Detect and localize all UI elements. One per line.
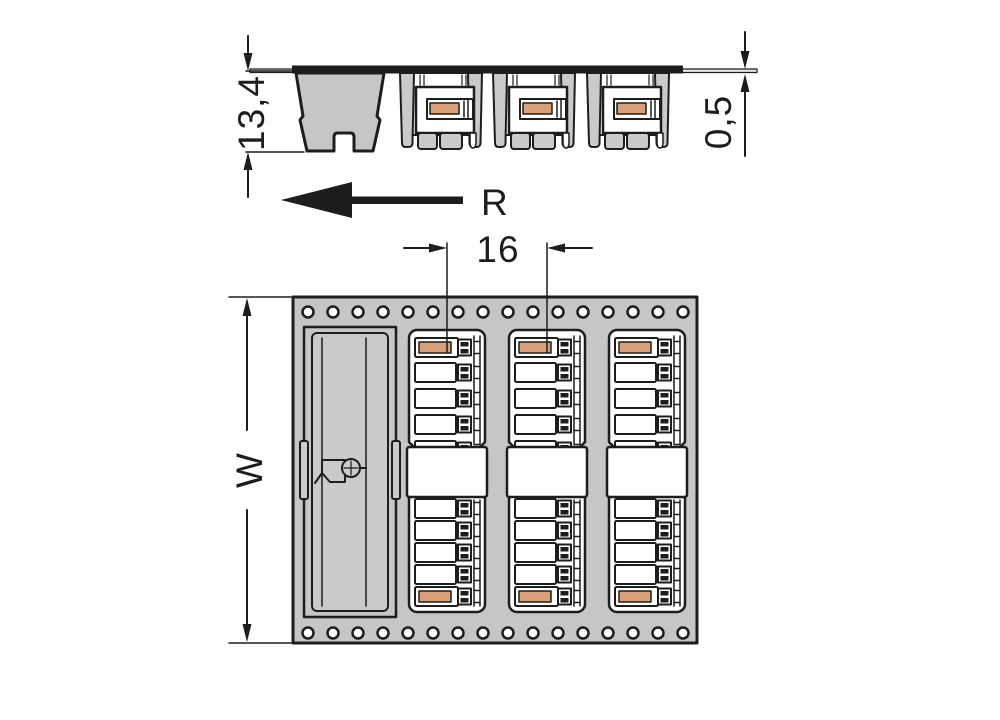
side-tab-left <box>300 441 308 499</box>
dimension-label-0-5: 0,5 <box>698 95 739 149</box>
dimension-label-w: W <box>229 452 270 488</box>
arrowhead-icon <box>429 244 447 253</box>
empty-pocket-top-view <box>300 327 400 617</box>
connector-top-view <box>507 330 587 612</box>
arrow-shaft <box>350 197 463 205</box>
dimension-label-16: 16 <box>476 229 519 270</box>
connector-top-view <box>607 330 687 612</box>
arrowhead-icon <box>741 74 750 92</box>
technical-drawing-page: 13,4 0,5 R <box>0 0 1000 720</box>
unreeling-direction-arrow: R <box>281 182 509 223</box>
arrowhead-icon <box>547 244 565 253</box>
connector-side-view <box>587 73 669 149</box>
arrowhead-icon <box>741 51 750 69</box>
dimension-13-4: 13,4 <box>231 36 304 197</box>
empty-pocket-side-view <box>296 73 384 151</box>
direction-label-r: R <box>481 182 509 223</box>
dimension-label-13-4: 13,4 <box>231 75 272 151</box>
arrowhead-icon <box>244 152 253 170</box>
arrowhead-icon <box>244 53 253 71</box>
arrowhead-icon <box>281 182 352 218</box>
dimension-w: W <box>229 297 291 643</box>
carrier-tape-bar <box>292 66 683 74</box>
top-view: 16 W <box>229 229 697 643</box>
connector-tape-technical-drawing: 13,4 0,5 R <box>0 0 1000 720</box>
side-tab-right <box>392 441 400 499</box>
arrowhead-icon <box>243 298 252 316</box>
connector-side-view <box>493 73 575 149</box>
connector-side-view <box>400 73 482 149</box>
connector-top-view <box>407 330 487 612</box>
side-view: 13,4 0,5 R <box>231 32 757 223</box>
arrowhead-icon <box>243 624 252 642</box>
dimension-0-5: 0,5 <box>698 32 750 156</box>
